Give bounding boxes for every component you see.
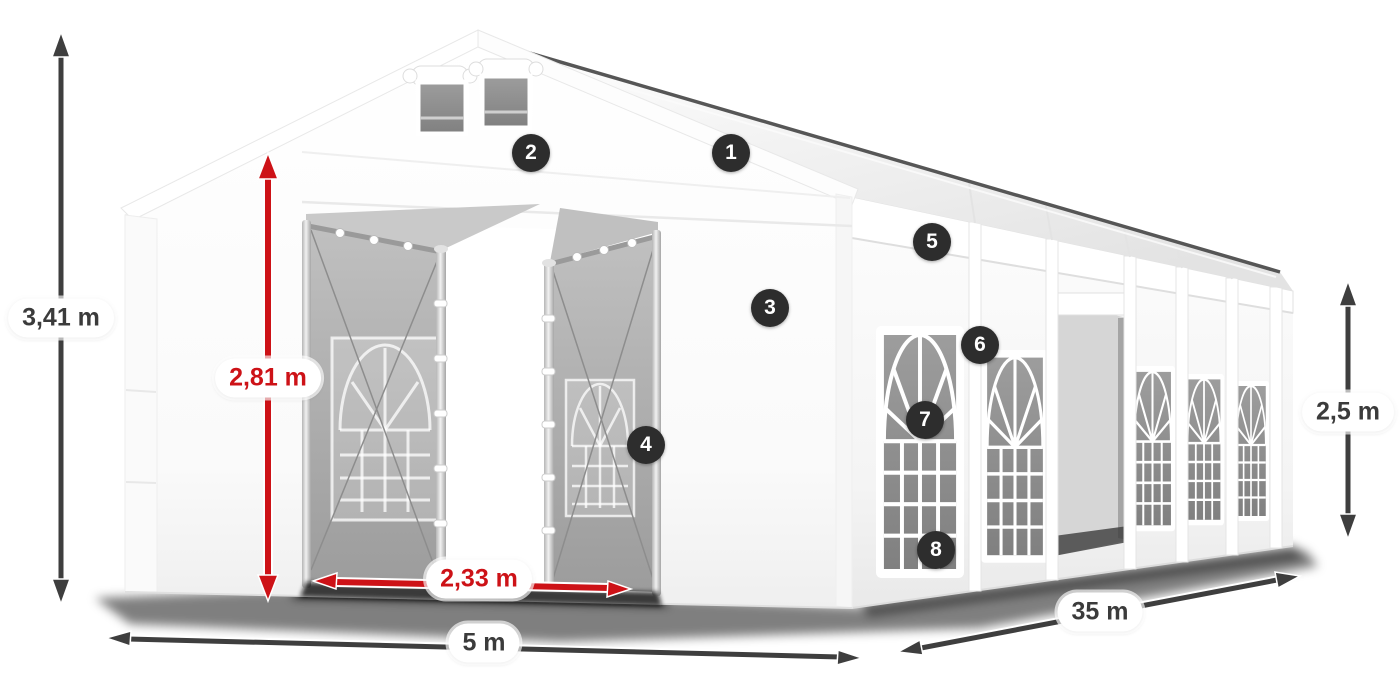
door-pole-center-left: [436, 248, 446, 590]
callout-badge-5: 5: [913, 223, 951, 261]
total-height-value: 3,41 m: [22, 304, 100, 332]
door-leaf-window-print-left: [332, 338, 438, 520]
side-height-value: 2,5 m: [1316, 398, 1380, 426]
dim-label-entrance-width: 2,33 m: [426, 560, 532, 599]
door-leaf-window-print-right: [566, 380, 634, 516]
side-window-2: [981, 350, 1049, 563]
callout-badge-6: 6: [961, 326, 999, 364]
front-right-corner-roll: [836, 194, 852, 608]
tent-dimension-diagram: 3,41 m 2,81 m 2,33 m 5 m 35 m 2,5 m 1 2 …: [0, 0, 1400, 700]
callout-1-number: 1: [725, 141, 737, 165]
dim-label-entrance-height: 2,81 m: [215, 359, 321, 398]
callout-badge-3: 3: [751, 289, 789, 327]
side-window-3: [1130, 366, 1175, 531]
callout-badge-7: 7: [906, 401, 944, 439]
front-entrance: [300, 204, 662, 606]
callout-4-number: 4: [640, 433, 652, 457]
entrance-jamb-pole-left: [302, 220, 311, 588]
dim-label-total-height: 3,41 m: [8, 299, 114, 338]
entrance-height-value: 2,81 m: [229, 364, 307, 392]
entrance-width-value: 2,33 m: [440, 565, 518, 593]
front-left-corner-roll: [125, 215, 157, 592]
callout-3-number: 3: [764, 296, 776, 320]
dim-label-tent-width: 5 m: [448, 624, 519, 663]
callout-8-number: 8: [930, 538, 942, 562]
tent-length-value: 35 m: [1072, 598, 1129, 626]
roof-vent-right: [469, 59, 543, 128]
callout-5-number: 5: [926, 230, 938, 254]
side-window-4: [1184, 374, 1224, 525]
callout-7-number: 7: [919, 408, 931, 432]
callout-badge-2: 2: [512, 134, 550, 172]
callout-badge-4: 4: [627, 426, 665, 464]
tent-illustration: [0, 0, 1400, 700]
callout-badge-8: 8: [917, 531, 955, 569]
entrance-jamb-pole-right: [652, 230, 661, 596]
callout-6-number: 6: [974, 333, 986, 357]
side-door-rolled-curtain: [1048, 293, 1134, 315]
dim-label-tent-length: 35 m: [1058, 593, 1143, 632]
tent-width-value: 5 m: [462, 629, 505, 657]
dim-label-side-height: 2,5 m: [1302, 393, 1394, 432]
callout-badge-1: 1: [712, 134, 750, 172]
callout-2-number: 2: [525, 141, 537, 165]
side-entrance-open: [1048, 293, 1134, 556]
